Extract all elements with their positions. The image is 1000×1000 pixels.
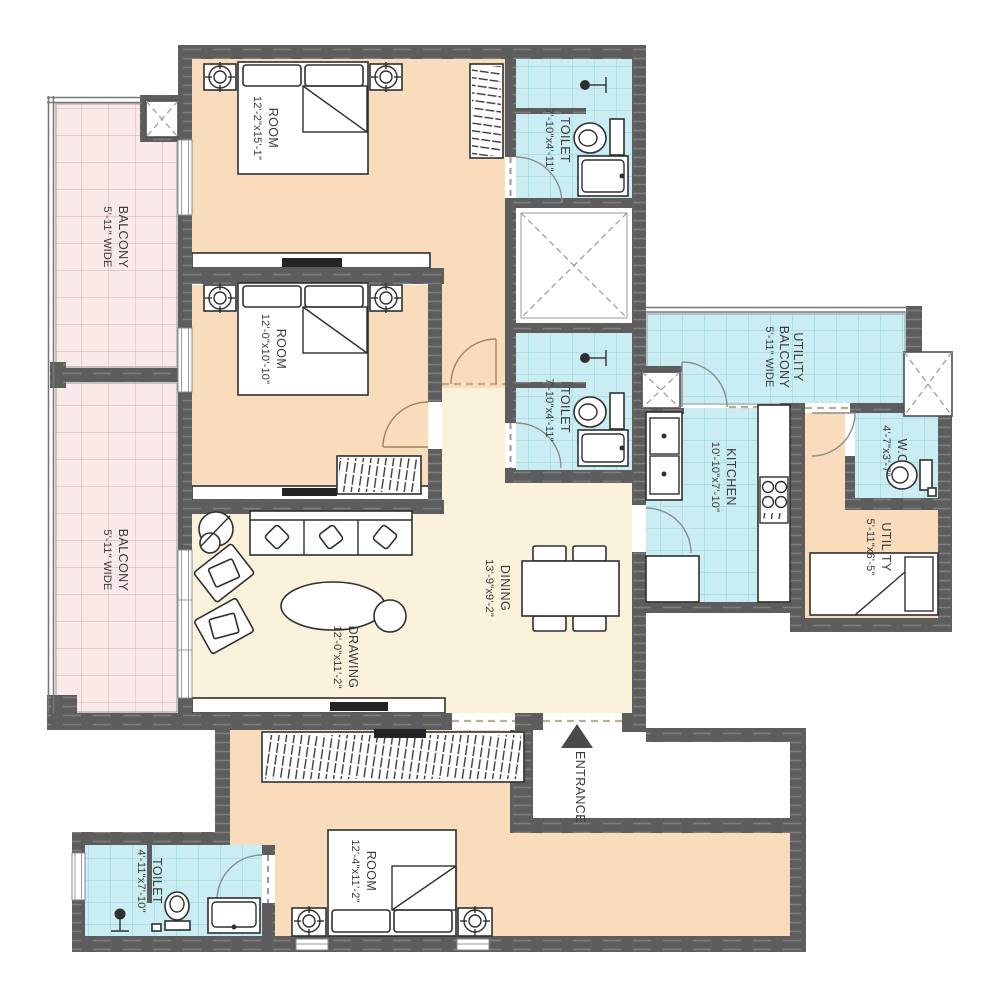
utility-balcony-floor [646, 313, 906, 405]
svg-text:7'-10"x4'-11": 7'-10"x4'-11" [543, 378, 555, 441]
entrance-label: ENTRANCE [573, 751, 587, 823]
svg-text:TOILET: TOILET [558, 387, 572, 433]
svg-text:4'-7"x3'-7": 4'-7"x3'-7" [880, 425, 892, 477]
wc-tank [610, 393, 624, 429]
svg-text:ENTRANCE: ENTRANCE [573, 751, 587, 823]
svg-text:UTILITY: UTILITY [791, 332, 805, 382]
svg-text:DRAWING: DRAWING [346, 626, 360, 689]
wardrobe-room1 [470, 64, 503, 158]
svg-text:7'-10"x4'-11": 7'-10"x4'-11" [543, 108, 555, 171]
svg-text:5'-11"x6'-5": 5'-11"x6'-5" [864, 518, 876, 575]
wc-tank [920, 460, 932, 490]
svg-text:5'-11" WIDE: 5'-11" WIDE [101, 529, 113, 590]
svg-text:5'-11" WIDE: 5'-11" WIDE [763, 326, 775, 387]
svg-text:4'-11"x7'-10": 4'-11"x7'-10" [135, 849, 147, 912]
wc-tank [610, 119, 624, 155]
svg-text:BALCONY: BALCONY [116, 529, 130, 592]
bed-room3 [328, 830, 456, 936]
svg-text:13'-9"x9'-2": 13'-9"x9'-2" [483, 559, 495, 617]
svg-text:ROOM: ROOM [266, 108, 280, 149]
utility-balcony-label: UTILITY BALCONY 5'-11" WIDE [763, 326, 805, 389]
svg-text:BALCONY: BALCONY [116, 206, 130, 269]
shaft-utility-balcony [904, 352, 952, 416]
svg-text:ROOM: ROOM [364, 851, 378, 892]
wc-tank [165, 921, 190, 930]
shaft-balcony [146, 101, 178, 137]
utility-passage-floor [805, 413, 845, 498]
window-room1 [178, 140, 192, 215]
tv-unit-room3 [374, 729, 426, 738]
svg-text:12'-2"x15'-1": 12'-2"x15'-1" [251, 96, 263, 160]
window-room3-a [296, 939, 328, 950]
svg-text:UTILITY: UTILITY [879, 522, 893, 572]
svg-text:DINING: DINING [498, 565, 512, 611]
main-shaft [516, 208, 632, 323]
fridge [646, 556, 699, 602]
floor-plan: ROOM12'-2"x15'-1" ROOM12'-0"x10'-10" ROO… [0, 0, 1000, 1000]
window-toilet3 [72, 853, 85, 900]
tv-unit-room2 [282, 488, 337, 496]
window-room2 [178, 328, 192, 392]
svg-text:12'-0"x11'-2": 12'-0"x11'-2" [331, 625, 343, 688]
window-room3-b [457, 939, 489, 950]
window-drawing [178, 550, 192, 698]
dining-table [522, 561, 619, 616]
shaft-kitchen [642, 372, 680, 408]
svg-text:BALCONY: BALCONY [777, 326, 791, 389]
bed-room2 [238, 283, 368, 395]
tv-unit-room1 [282, 258, 342, 267]
floor-plan-svg: ROOM12'-2"x15'-1" ROOM12'-0"x10'-10" ROO… [0, 0, 1000, 1000]
svg-text:12'-4"x11'-2": 12'-4"x11'-2" [349, 839, 361, 902]
svg-text:12'-0"x10'-10": 12'-0"x10'-10" [259, 314, 271, 384]
wardrobe-room2 [337, 456, 421, 494]
svg-text:5'-11" WIDE: 5'-11" WIDE [101, 206, 113, 267]
svg-text:10'-10"x7'-10": 10'-10"x7'-10" [709, 442, 721, 512]
tv-unit-drawing [330, 702, 388, 711]
sofa [250, 511, 412, 555]
svg-text:ROOM: ROOM [274, 329, 288, 370]
svg-text:W.C: W.C [895, 439, 909, 464]
svg-text:TOILET: TOILET [558, 117, 572, 163]
svg-text:TOILET: TOILET [150, 858, 164, 904]
svg-text:KITCHEN: KITCHEN [724, 448, 738, 506]
wardrobe-room3 [262, 732, 524, 782]
